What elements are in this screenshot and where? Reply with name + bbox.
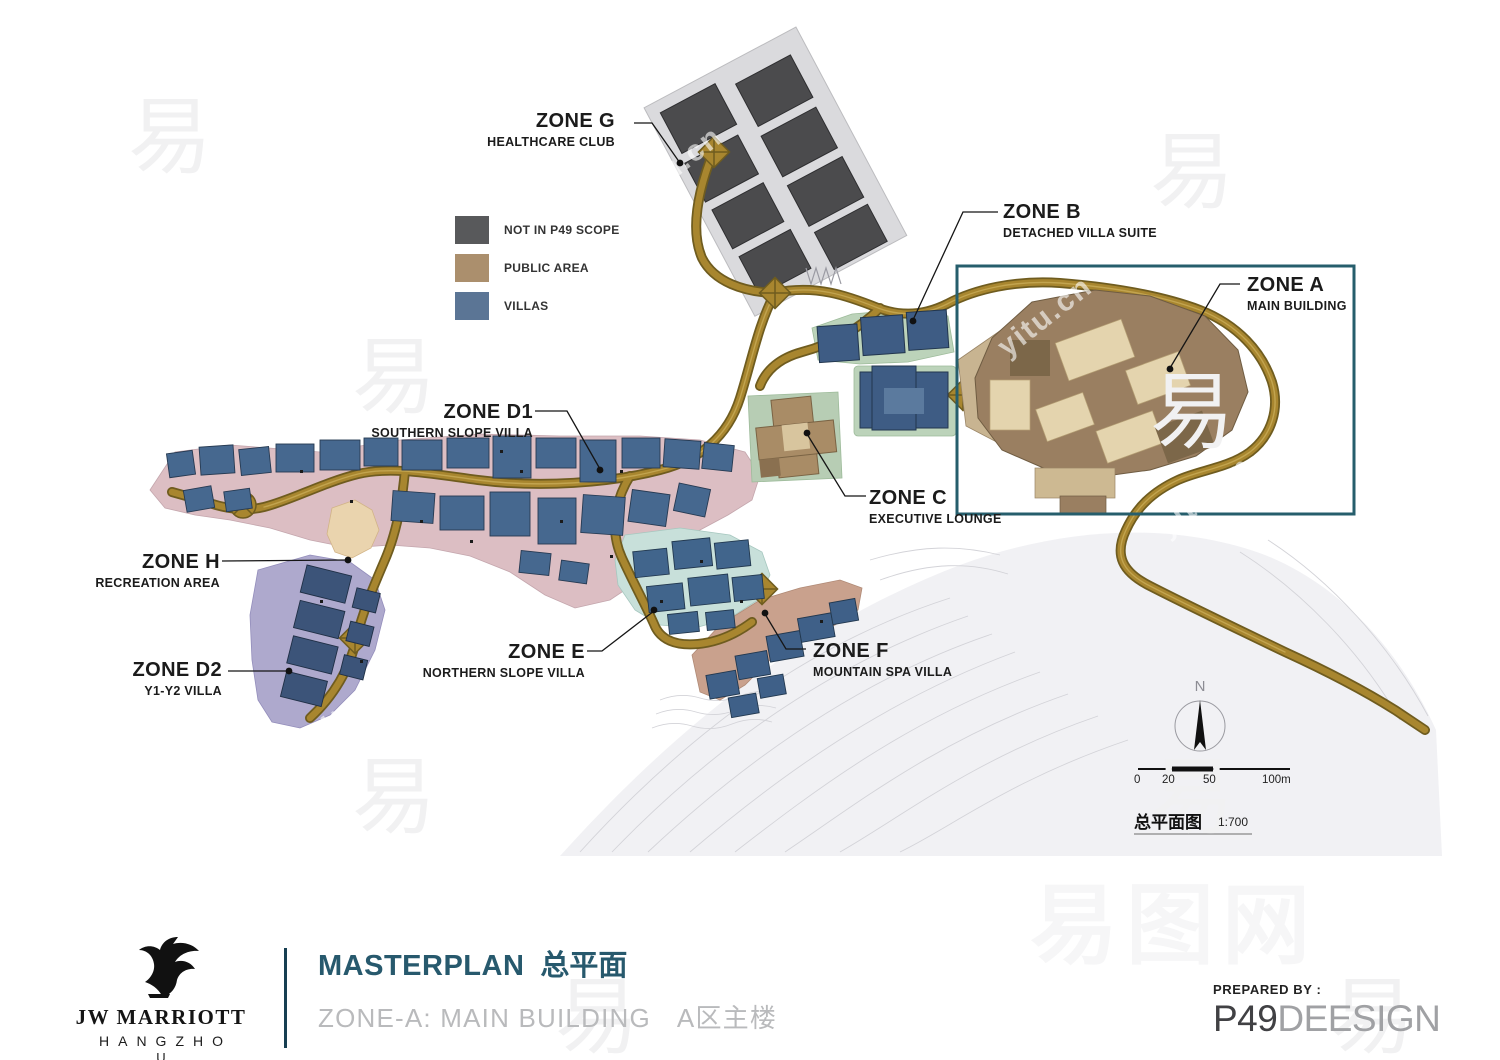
firm-name-bold: P49 (1213, 998, 1277, 1039)
scale-tick-100: 100m (1262, 774, 1291, 786)
page-subtitle-en: ZONE-A: MAIN BUILDING (318, 1003, 651, 1034)
watermark-char: 易 (352, 730, 436, 851)
logo-city-text: HANGZHO (57, 1033, 274, 1049)
zone-label-e: ZONE E NORTHERN SLOPE VILLA (383, 641, 585, 680)
zone-label-f: ZONE F MOUNTAIN SPA VILLA (813, 640, 1033, 679)
plan-caption: 总平面图 (1134, 808, 1202, 833)
legend-row: PUBLIC AREA (455, 254, 620, 282)
page-title-en: MASTERPLAN (318, 950, 524, 983)
zone-label-a: ZONE A MAIN BUILDING (1247, 274, 1407, 313)
zone-name: ZONE A (1247, 274, 1407, 296)
zone-subtitle: SOUTHERN SLOPE VILLA (331, 426, 533, 440)
zone-name: ZONE B (1003, 201, 1263, 223)
scale-tick-50: 50 (1203, 774, 1216, 786)
zone-subtitle: HEALTHCARE CLUB (415, 135, 615, 149)
griffin-icon (118, 934, 204, 998)
zone-name: ZONE G (415, 110, 615, 132)
legend-swatch-not-in-scope (455, 216, 489, 244)
watermark-char: 易 (1150, 345, 1234, 466)
zone-name: ZONE H (18, 551, 220, 573)
legend-row: VILLAS (455, 292, 620, 320)
jw-marriott-logo: JW MARRIOTT HANGZHO U (48, 934, 274, 1060)
zone-label-g: ZONE G HEALTHCARE CLUB (415, 110, 615, 149)
zone-label-b: ZONE B DETACHED VILLA SUITE (1003, 201, 1263, 240)
page-title-cn: 总平面 (540, 942, 627, 984)
watermark-site-name: 易图网 (1030, 855, 1318, 982)
zone-name: ZONE D1 (331, 401, 533, 423)
scale-tick-20: 20 (1162, 774, 1175, 786)
page-title: MASTERPLAN 总平面 (318, 942, 627, 984)
legend-swatch-villas (455, 292, 489, 320)
legend-label: NOT IN P49 SCOPE (504, 223, 620, 237)
prepared-by-label: PREPARED BY : (1213, 982, 1440, 997)
zone-label-c: ZONE C EXECUTIVE LOUNGE (869, 487, 1089, 526)
zone-name: ZONE D2 (20, 659, 222, 681)
logo-brand-text: JW MARRIOTT (48, 1005, 274, 1030)
legend-label: PUBLIC AREA (504, 261, 589, 275)
watermark-char: 易 (128, 70, 212, 191)
zone-subtitle: NORTHERN SLOPE VILLA (383, 666, 585, 680)
zone-name: ZONE C (869, 487, 1089, 509)
zone-label-h: ZONE H RECREATION AREA (18, 551, 220, 590)
zone-name: ZONE E (383, 641, 585, 663)
zone-subtitle: MAIN BUILDING (1247, 299, 1407, 313)
plan-scale-ratio: 1:700 (1218, 815, 1248, 829)
zone-name: ZONE F (813, 640, 1033, 662)
zone-subtitle: Y1-Y2 VILLA (20, 684, 222, 698)
masterplan-page: 易 易 易 易 易 易 易 易 易图网 (0, 0, 1500, 1060)
legend-label: VILLAS (504, 299, 548, 313)
zone-subtitle: EXECUTIVE LOUNGE (869, 512, 1089, 526)
page-subtitle: ZONE-A: MAIN BUILDING A区主楼 (318, 998, 777, 1035)
zone-label-d2: ZONE D2 Y1-Y2 VILLA (20, 659, 222, 698)
masterplan-drawing (0, 0, 1500, 880)
scale-tick-0: 0 (1134, 774, 1140, 786)
logo-city-text-2: U (48, 1050, 274, 1060)
zone-subtitle: DETACHED VILLA SUITE (1003, 226, 1263, 240)
firm-name-light: DEESIGN (1277, 998, 1440, 1039)
prepared-by-block: PREPARED BY : P49DEESIGN (1213, 982, 1440, 1040)
design-firm-name: P49DEESIGN (1213, 998, 1440, 1040)
zone-subtitle: RECREATION AREA (18, 576, 220, 590)
footer-divider (284, 948, 287, 1048)
zone-subtitle: MOUNTAIN SPA VILLA (813, 665, 1033, 679)
north-label: N (1188, 678, 1212, 695)
zone-label-d1: ZONE D1 SOUTHERN SLOPE VILLA (331, 401, 533, 440)
legend-swatch-public-area (455, 254, 489, 282)
legend: NOT IN P49 SCOPE PUBLIC AREA VILLAS (455, 216, 620, 330)
page-subtitle-cn: A区主楼 (677, 998, 777, 1035)
legend-row: NOT IN P49 SCOPE (455, 216, 620, 244)
